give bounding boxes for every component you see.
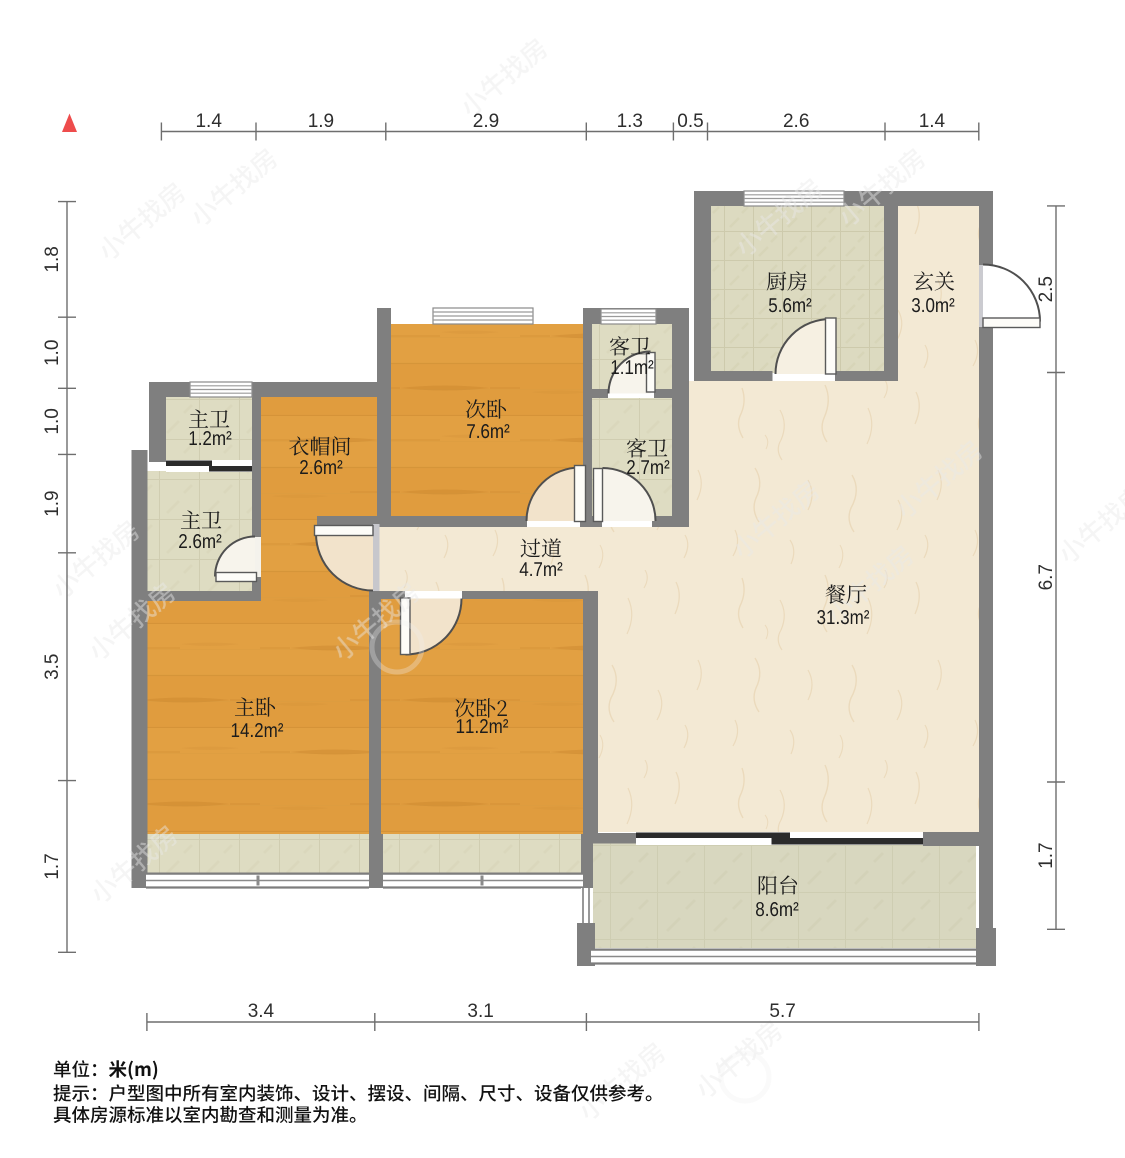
svg-text:1.8: 1.8 [42, 246, 63, 272]
svg-text:1.7: 1.7 [42, 853, 63, 879]
svg-text:1.9: 1.9 [42, 490, 63, 516]
svg-text:1.3: 1.3 [617, 111, 643, 132]
svg-text:0.5: 0.5 [677, 111, 703, 132]
svg-text:6.7: 6.7 [1036, 564, 1057, 590]
svg-text:1.7: 1.7 [1036, 842, 1057, 868]
svg-text:5.7: 5.7 [769, 1001, 795, 1022]
svg-text:2.6: 2.6 [783, 111, 809, 132]
svg-text:1.9: 1.9 [308, 111, 334, 132]
svg-text:1.4: 1.4 [195, 111, 222, 132]
svg-text:1.0: 1.0 [42, 408, 63, 434]
svg-text:3.5: 3.5 [42, 653, 63, 679]
svg-text:2.5: 2.5 [1036, 276, 1057, 302]
svg-text:2.9: 2.9 [473, 111, 499, 132]
svg-text:3.1: 3.1 [467, 1001, 493, 1022]
svg-text:1.4: 1.4 [919, 111, 946, 132]
svg-text:1.0: 1.0 [42, 340, 63, 366]
svg-text:3.4: 3.4 [248, 1001, 275, 1022]
